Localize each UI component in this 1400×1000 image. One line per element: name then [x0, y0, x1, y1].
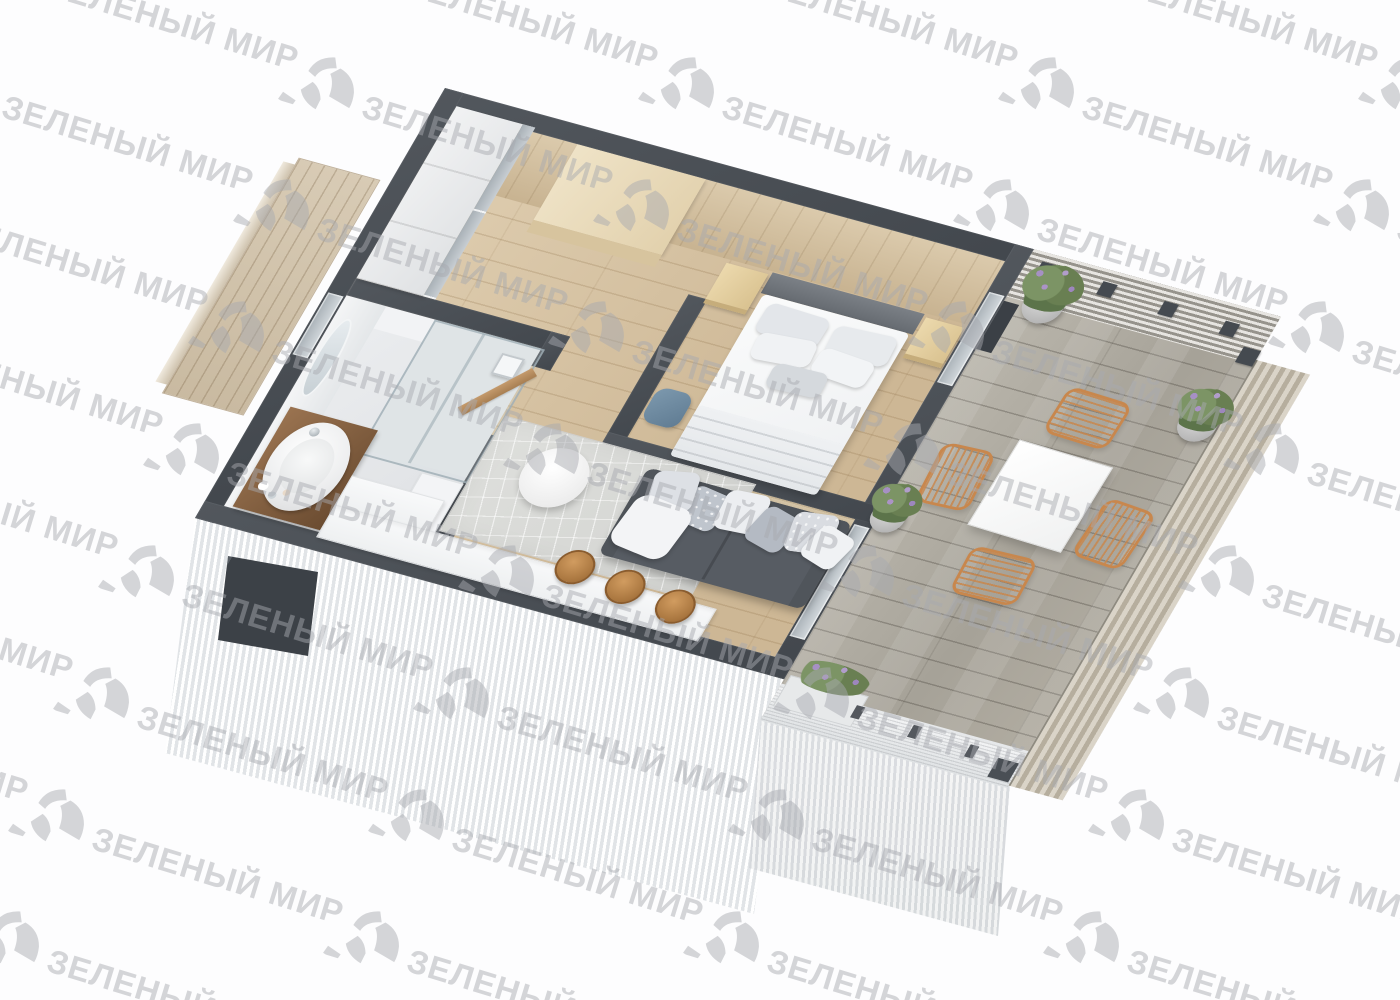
floor-plan-render: ЗЕЛЕНЫЙ МИРЗЕЛЕНЫЙ МИРЗЕЛЕНЫЙ МИРЗЕЛЕНЫЙ… — [0, 0, 1400, 1000]
house-scene — [0, 0, 1400, 1000]
